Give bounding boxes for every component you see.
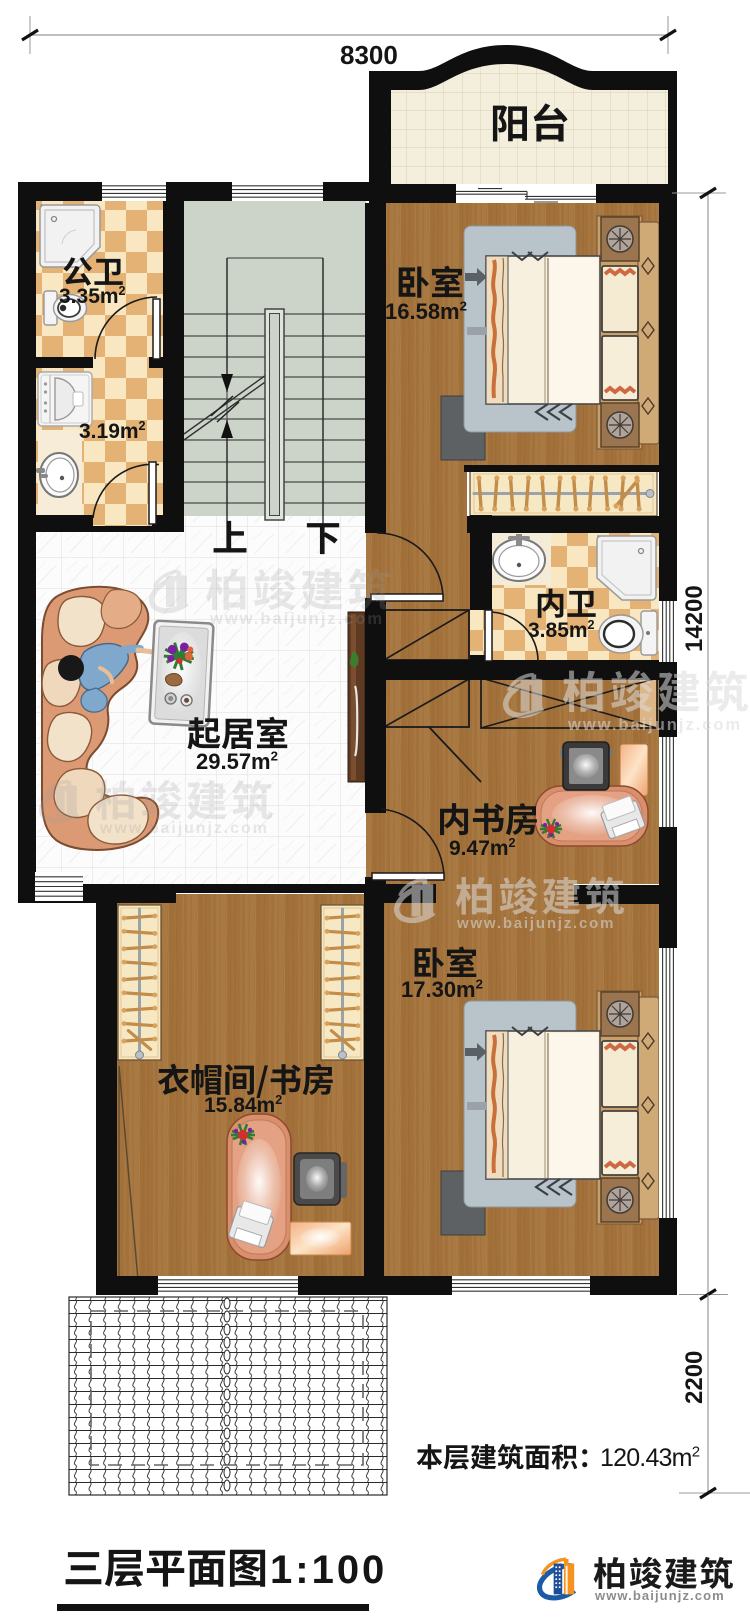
svg-text:15.84m2: 15.84m2 [204, 1093, 282, 1117]
svg-text:2200: 2200 [681, 1351, 708, 1404]
svg-text:17.30m2: 17.30m2 [401, 977, 483, 1002]
svg-text:3.35m2: 3.35m2 [59, 284, 126, 308]
svg-text:www.baijunjz.com: www.baijunjz.com [99, 820, 269, 837]
svg-text:1:100: 1:100 [270, 1548, 387, 1592]
svg-text:www.baijunjz.com: www.baijunjz.com [456, 915, 615, 932]
svg-text:8300: 8300 [340, 40, 398, 70]
svg-text:www.baijunjz.com: www.baijunjz.com [567, 716, 742, 734]
svg-text:9.47m2: 9.47m2 [449, 836, 516, 860]
svg-text:www.baijunjz.com: www.baijunjz.com [209, 610, 384, 628]
svg-text:14200: 14200 [681, 585, 708, 652]
svg-text:29.57m2: 29.57m2 [196, 749, 278, 774]
svg-text:120.43m2: 120.43m2 [600, 1444, 700, 1473]
svg-text:3.85m2: 3.85m2 [528, 618, 595, 642]
svg-text:16.58m2: 16.58m2 [385, 299, 467, 324]
svg-text:www.baijunjz.com: www.baijunjz.com [594, 1588, 725, 1603]
svg-text:3.19m2: 3.19m2 [79, 419, 146, 443]
